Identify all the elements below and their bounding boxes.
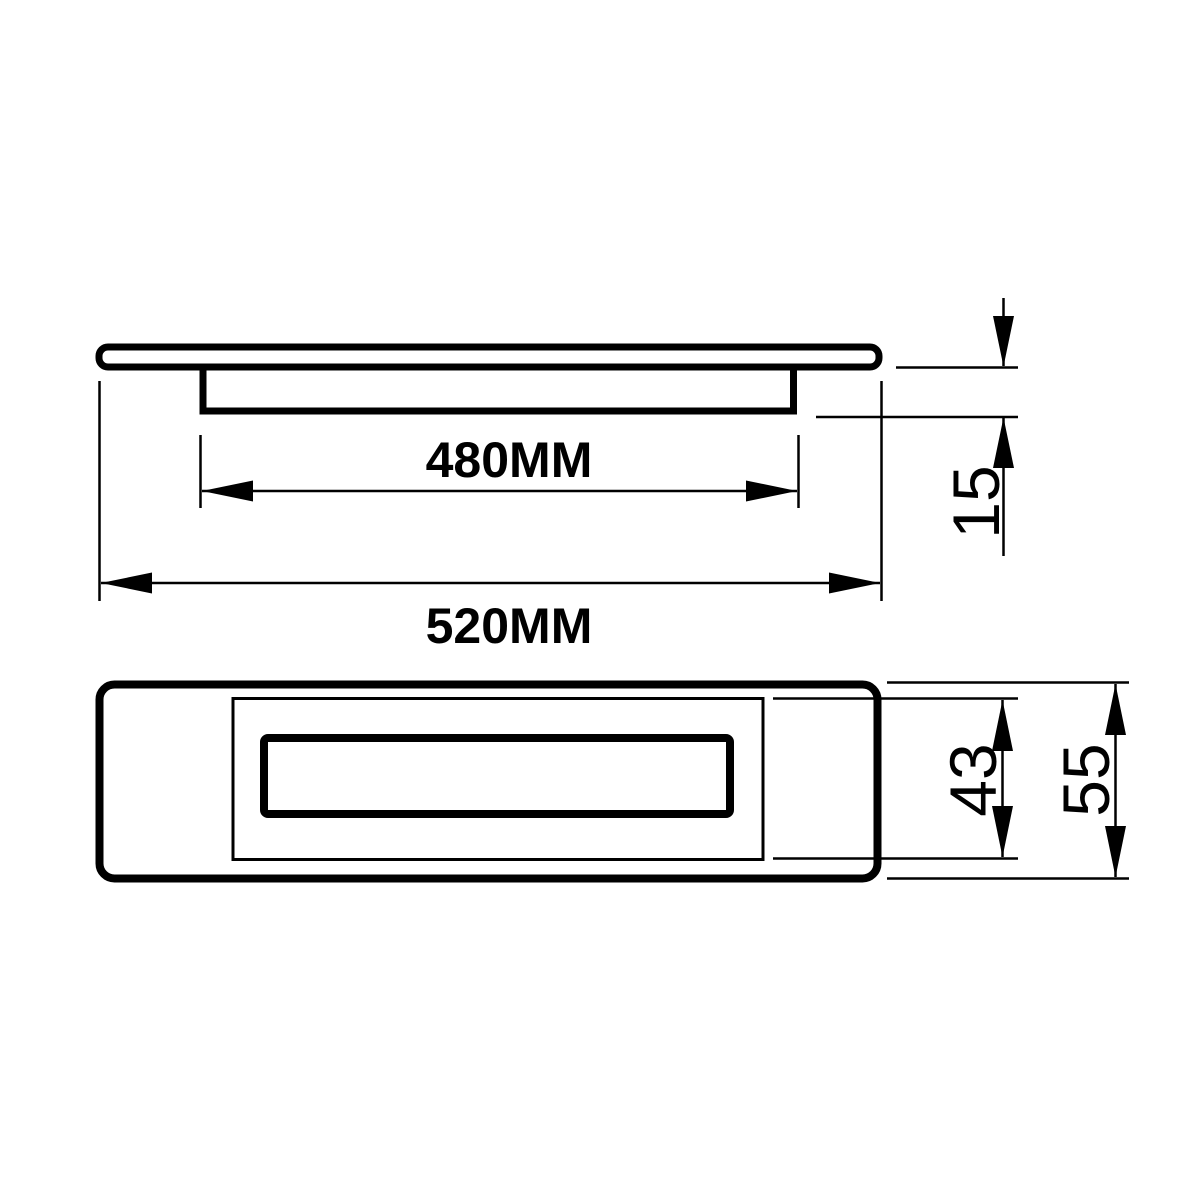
- recess-width-label: 480MM: [426, 432, 593, 488]
- face-plate-outline: [100, 685, 878, 879]
- dimension-overall-width: 520MM: [100, 381, 882, 654]
- arrowhead-down: [993, 316, 1014, 367]
- technical-drawing-page: 480MM 520MM 15: [0, 0, 1200, 1200]
- arrowhead-left: [101, 573, 152, 594]
- drawing-canvas: 480MM 520MM 15: [0, 0, 1200, 1200]
- dimension-recess-height: 43: [773, 699, 1018, 859]
- front-face-view: [100, 685, 878, 879]
- arrowhead-up: [993, 418, 1014, 469]
- flange-plate-outline: [99, 347, 879, 367]
- dimension-recess-depth: 15: [816, 298, 1018, 556]
- overall-height-label: 55: [1049, 743, 1123, 816]
- arrowhead-right: [829, 573, 880, 594]
- dimension-recess-width: 480MM: [201, 432, 799, 508]
- side-profile-view: [99, 347, 879, 411]
- recess-depth-label: 15: [939, 465, 1013, 538]
- recess-rim-outline: [233, 699, 763, 860]
- arrowhead-left: [202, 481, 253, 502]
- recess-height-label: 43: [936, 743, 1010, 816]
- arrowhead-up: [1105, 684, 1126, 735]
- arrowhead-down: [1105, 826, 1126, 877]
- pocket-opening-outline: [264, 738, 730, 814]
- overall-width-label: 520MM: [426, 598, 593, 654]
- recessed-body-outline: [203, 366, 794, 411]
- arrowhead-right: [746, 481, 797, 502]
